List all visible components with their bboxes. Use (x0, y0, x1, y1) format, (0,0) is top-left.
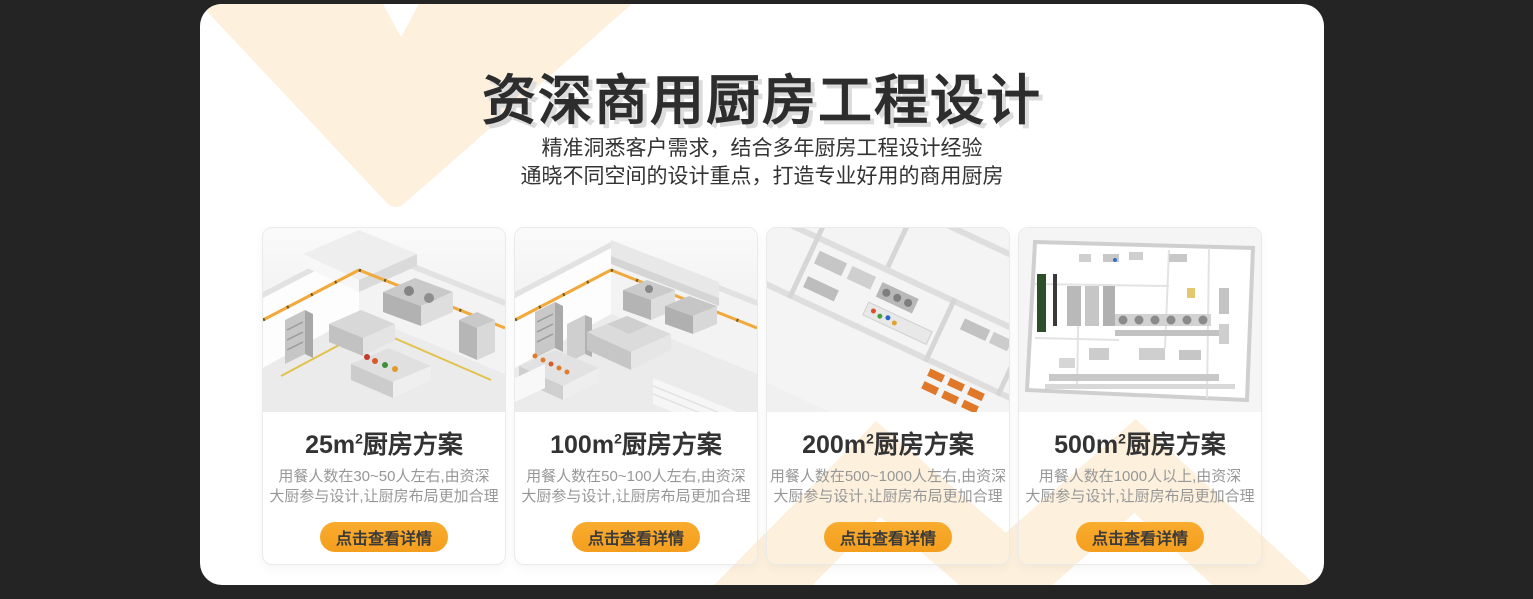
page-title: 资深商用厨房工程设计 (200, 56, 1324, 135)
card-title: 500m2厨房方案 (1019, 425, 1261, 461)
card-description: 用餐人数在1000人以上,由资深 大厨参与设计,让厨房布局更加合理 (1019, 467, 1261, 507)
kitchen-render-25m2-image (263, 228, 505, 412)
card-description-line-1: 用餐人数在500~1000人左右,由资深 (767, 467, 1009, 487)
card-description-line-2: 大厨参与设计,让厨房布局更加合理 (263, 487, 505, 507)
card-description-line-2: 大厨参与设计,让厨房布局更加合理 (515, 487, 757, 507)
kitchen-render-200m2-image (767, 228, 1009, 412)
kitchen-render-25m2-illustration (263, 228, 505, 412)
page-background: { "header": { "title": "资深商用厨房工程设计", "su… (0, 0, 1533, 599)
plan-card-25m2: 25m2厨房方案 用餐人数在30~50人左右,由资深 大厨参与设计,让厨房布局更… (262, 227, 506, 565)
kitchen-render-500m2-image (1019, 228, 1261, 412)
card-description-line-2: 大厨参与设计,让厨房布局更加合理 (767, 487, 1009, 507)
kitchen-render-500m2-illustration (1019, 228, 1261, 412)
card-title-sup: 2 (614, 431, 622, 447)
card-title: 200m2厨房方案 (767, 425, 1009, 461)
plan-card-100m2: 100m2厨房方案 用餐人数在50~100人左右,由资深 大厨参与设计,让厨房布… (514, 227, 758, 565)
view-details-button-100m2[interactable]: 点击查看详情 (572, 522, 700, 552)
card-title-sup: 2 (355, 431, 363, 447)
plan-cards-row: 25m2厨房方案 用餐人数在30~50人左右,由资深 大厨参与设计,让厨房布局更… (262, 227, 1262, 565)
subtitle-line-2: 通晓不同空间的设计重点，打造专业好用的商用厨房 (200, 164, 1324, 190)
card-description-line-1: 用餐人数在50~100人左右,由资深 (515, 467, 757, 487)
plan-card-200m2: 200m2厨房方案 用餐人数在500~1000人左右,由资深 大厨参与设计,让厨… (766, 227, 1010, 565)
kitchen-render-200m2-illustration (767, 228, 1009, 412)
view-details-button-200m2[interactable]: 点击查看详情 (824, 522, 952, 552)
card-description: 用餐人数在500~1000人左右,由资深 大厨参与设计,让厨房布局更加合理 (767, 467, 1009, 507)
card-description-line-1: 用餐人数在1000人以上,由资深 (1019, 467, 1261, 487)
card-title-sup: 2 (866, 431, 874, 447)
view-details-button-25m2[interactable]: 点击查看详情 (320, 522, 448, 552)
content-panel: 资深商用厨房工程设计 精准洞悉客户需求，结合多年厨房工程设计经验 通晓不同空间的… (200, 4, 1324, 585)
card-description: 用餐人数在50~100人左右,由资深 大厨参与设计,让厨房布局更加合理 (515, 467, 757, 507)
card-title: 100m2厨房方案 (515, 425, 757, 461)
plan-card-500m2: 500m2厨房方案 用餐人数在1000人以上,由资深 大厨参与设计,让厨房布局更… (1018, 227, 1262, 565)
card-description-line-1: 用餐人数在30~50人左右,由资深 (263, 467, 505, 487)
card-title: 25m2厨房方案 (263, 425, 505, 461)
view-details-button-500m2[interactable]: 点击查看详情 (1076, 522, 1204, 552)
card-description-line-2: 大厨参与设计,让厨房布局更加合理 (1019, 487, 1261, 507)
subtitle-line-1: 精准洞悉客户需求，结合多年厨房工程设计经验 (200, 136, 1324, 162)
card-description: 用餐人数在30~50人左右,由资深 大厨参与设计,让厨房布局更加合理 (263, 467, 505, 507)
card-title-sup: 2 (1118, 431, 1126, 447)
kitchen-render-100m2-illustration (515, 228, 757, 412)
kitchen-render-100m2-image (515, 228, 757, 412)
